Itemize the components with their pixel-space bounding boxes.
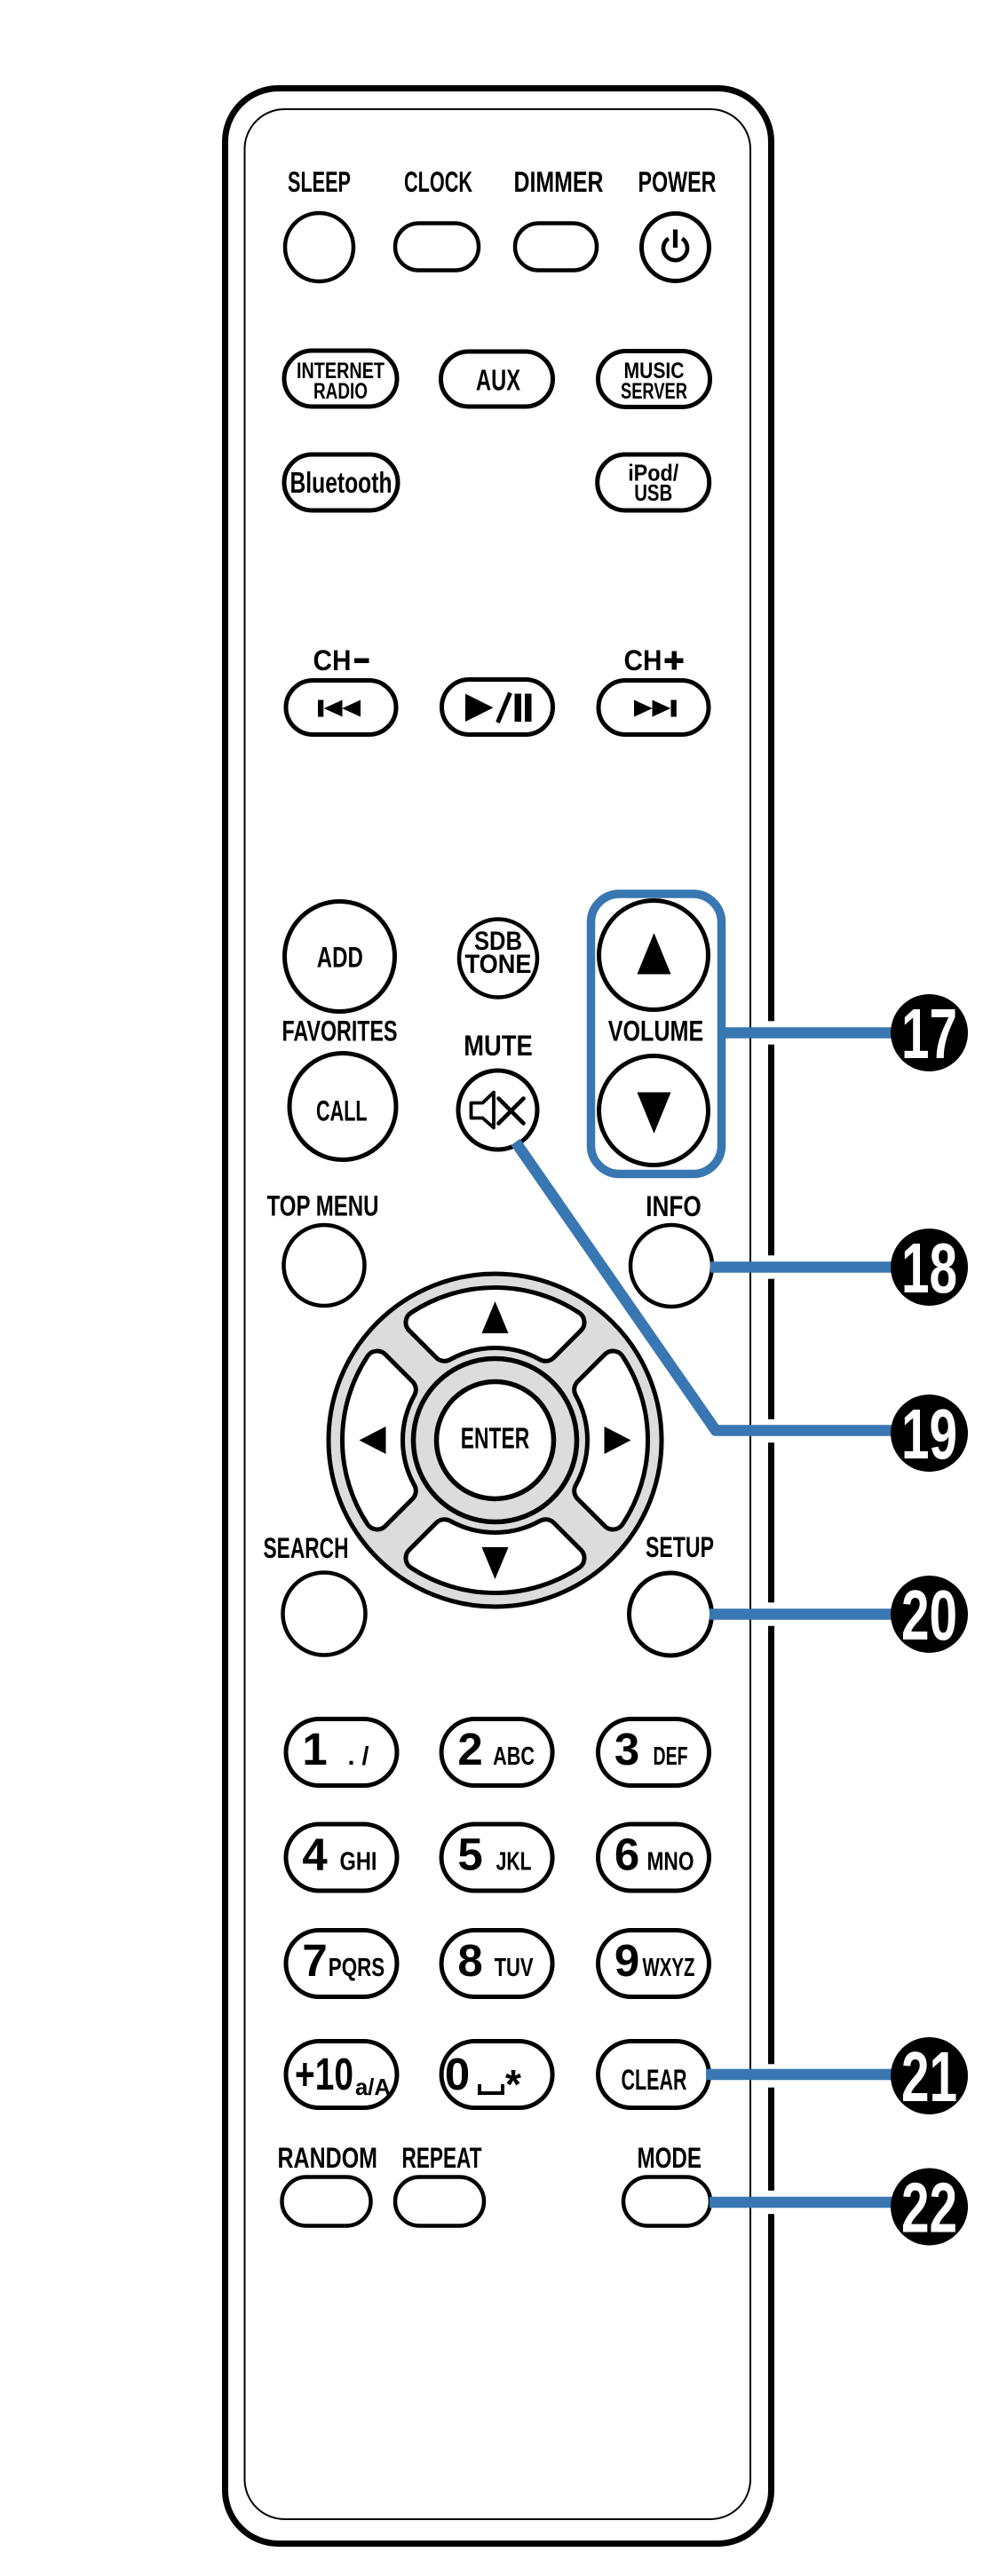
svg-text:JKL: JKL <box>496 1848 532 1877</box>
svg-text:ABC: ABC <box>493 1742 535 1771</box>
svg-text:CALL: CALL <box>316 1095 368 1127</box>
svg-text:9: 9 <box>614 1935 639 1986</box>
svg-text:POWER: POWER <box>638 166 717 198</box>
svg-text:SETUP: SETUP <box>646 1531 714 1563</box>
svg-text:0: 0 <box>445 2049 470 2099</box>
svg-text:SERVER: SERVER <box>621 379 687 404</box>
svg-text:*: * <box>505 2061 521 2107</box>
svg-text:CH: CH <box>624 644 662 676</box>
svg-text:DEF: DEF <box>654 1742 688 1771</box>
svg-text:18: 18 <box>901 1229 957 1308</box>
svg-text:DIMMER: DIMMER <box>514 166 604 198</box>
svg-text:19: 19 <box>901 1395 957 1474</box>
svg-text:RADIO: RADIO <box>313 379 368 404</box>
svg-text:GHI: GHI <box>340 1848 377 1877</box>
svg-text:MODE: MODE <box>638 2142 702 2174</box>
svg-text:MUTE: MUTE <box>464 1030 533 1062</box>
svg-text:21: 21 <box>901 2037 957 2116</box>
svg-text:CH: CH <box>313 644 352 676</box>
svg-text:SLEEP: SLEEP <box>288 166 351 198</box>
svg-text:17: 17 <box>901 994 957 1073</box>
svg-text:CLEAR: CLEAR <box>622 2064 687 2096</box>
svg-text:MNO: MNO <box>647 1848 694 1877</box>
svg-text:Bluetooth: Bluetooth <box>290 466 392 499</box>
svg-text:VOLUME: VOLUME <box>608 1015 704 1047</box>
svg-text:RANDOM: RANDOM <box>278 2142 378 2174</box>
svg-text:WXYZ: WXYZ <box>643 1954 695 1982</box>
svg-text:5: 5 <box>457 1829 482 1880</box>
svg-text:FAVORITES: FAVORITES <box>282 1015 398 1047</box>
svg-text:REPEAT: REPEAT <box>402 2142 482 2174</box>
svg-text:. /: . / <box>348 1742 369 1771</box>
svg-text:6: 6 <box>614 1829 639 1880</box>
svg-text:SEARCH: SEARCH <box>264 1532 349 1564</box>
svg-text:8: 8 <box>457 1935 482 1986</box>
svg-text:TOP MENU: TOP MENU <box>267 1190 379 1222</box>
svg-text:TUV: TUV <box>495 1954 534 1982</box>
svg-text:ADD: ADD <box>317 942 363 974</box>
svg-text:7: 7 <box>302 1935 327 1986</box>
svg-text:4: 4 <box>302 1829 328 1880</box>
svg-text:2: 2 <box>457 1724 482 1774</box>
svg-text:+10: +10 <box>295 2049 353 2099</box>
svg-text:USB: USB <box>634 479 672 506</box>
svg-text:22: 22 <box>901 2169 957 2248</box>
svg-text:TONE: TONE <box>465 950 532 979</box>
svg-text:PQRS: PQRS <box>329 1954 385 1982</box>
svg-text:20: 20 <box>901 1576 957 1655</box>
svg-text:CLOCK: CLOCK <box>404 166 472 198</box>
svg-text:INFO: INFO <box>646 1190 702 1222</box>
svg-text:1: 1 <box>302 1724 327 1774</box>
svg-text:a/A: a/A <box>355 2074 391 2100</box>
svg-text:3: 3 <box>614 1724 639 1774</box>
svg-text:ENTER: ENTER <box>461 1422 530 1455</box>
svg-text:AUX: AUX <box>476 364 520 397</box>
